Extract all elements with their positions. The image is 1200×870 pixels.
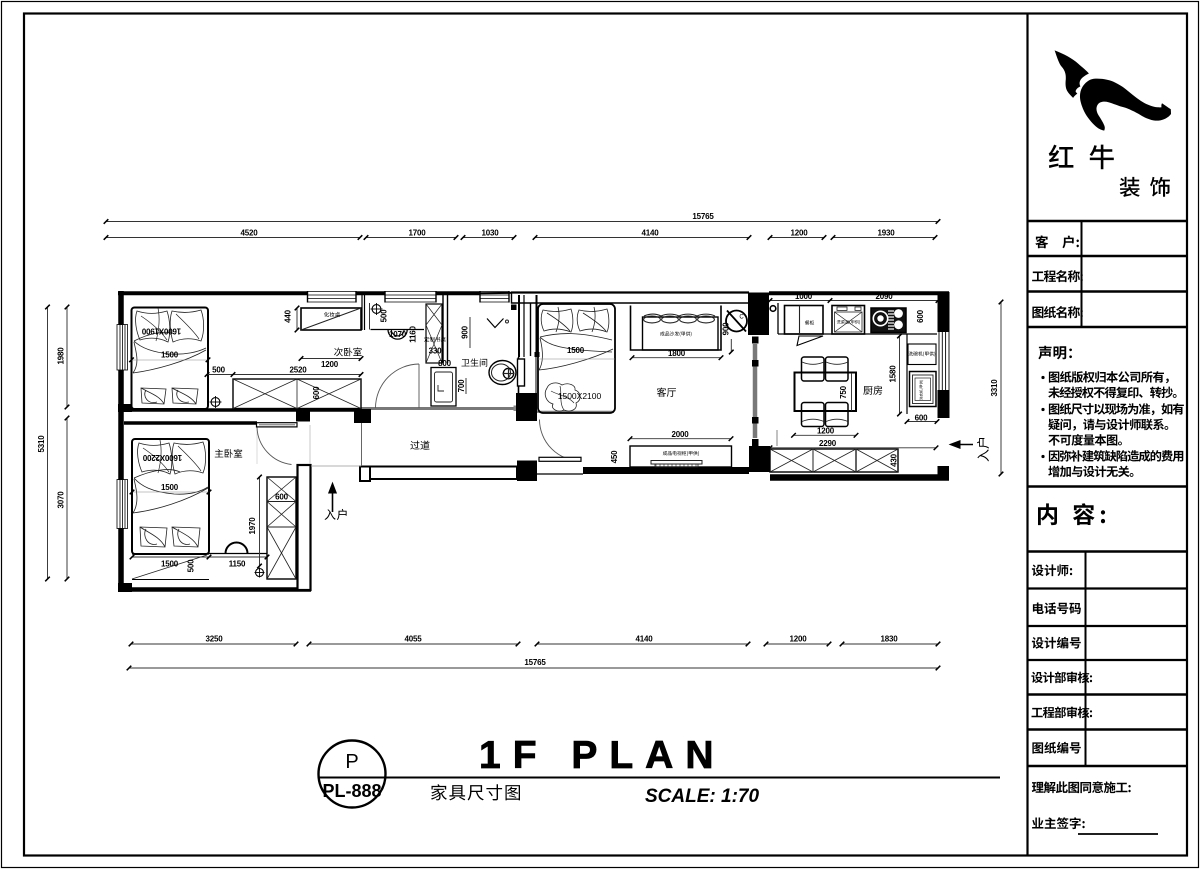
svg-text:1830: 1830 xyxy=(881,635,899,644)
svg-text:15765: 15765 xyxy=(524,658,546,667)
svg-text:PL-888: PL-888 xyxy=(322,781,381,801)
svg-text:2090: 2090 xyxy=(876,292,894,301)
svg-text:450: 450 xyxy=(610,450,619,463)
svg-text:SCALE: 1:70: SCALE: 1:70 xyxy=(645,786,759,807)
svg-text:430: 430 xyxy=(890,453,899,466)
svg-text:1600X2200: 1600X2200 xyxy=(142,453,182,462)
svg-text:1500: 1500 xyxy=(161,351,179,360)
svg-text:3250: 3250 xyxy=(206,635,224,644)
svg-text:2520: 2520 xyxy=(290,366,308,375)
svg-text:3310: 3310 xyxy=(990,379,999,397)
svg-text:1930: 1930 xyxy=(878,229,896,238)
svg-text:1070: 1070 xyxy=(389,330,407,339)
svg-text:15765: 15765 xyxy=(692,212,714,221)
svg-text:1200: 1200 xyxy=(817,427,835,436)
svg-text:C: C xyxy=(739,315,744,321)
svg-text:900: 900 xyxy=(722,322,731,335)
svg-text:1980: 1980 xyxy=(57,347,66,365)
svg-text:1000: 1000 xyxy=(795,292,813,301)
svg-text:500: 500 xyxy=(212,366,225,375)
svg-text:1200: 1200 xyxy=(321,360,339,369)
svg-text:500: 500 xyxy=(187,559,196,572)
svg-text:1700: 1700 xyxy=(409,229,427,238)
svg-text:750: 750 xyxy=(839,385,848,398)
svg-text:1150: 1150 xyxy=(229,560,246,569)
svg-text:1970: 1970 xyxy=(248,517,257,535)
svg-text:600: 600 xyxy=(312,386,321,399)
svg-text:330: 330 xyxy=(429,347,442,356)
svg-text:700: 700 xyxy=(457,379,466,392)
svg-text:1500: 1500 xyxy=(161,560,179,569)
svg-text:800: 800 xyxy=(438,359,451,368)
svg-text:1500X2100: 1500X2100 xyxy=(558,391,602,401)
svg-text:1800: 1800 xyxy=(668,349,686,358)
svg-text:600: 600 xyxy=(915,414,928,423)
svg-text:2290: 2290 xyxy=(819,439,837,448)
svg-text:3070: 3070 xyxy=(57,491,66,509)
svg-text:5310: 5310 xyxy=(37,435,46,453)
svg-text:500: 500 xyxy=(380,309,389,322)
svg-text:1500: 1500 xyxy=(161,483,179,492)
svg-text:1600X1900: 1600X1900 xyxy=(141,327,181,336)
svg-text:1F PLAN: 1F PLAN xyxy=(479,734,726,777)
svg-text:1160: 1160 xyxy=(409,325,418,342)
svg-text:1030: 1030 xyxy=(482,229,500,238)
svg-text:1500: 1500 xyxy=(567,346,585,355)
svg-text:P: P xyxy=(345,751,358,773)
svg-text:900: 900 xyxy=(461,325,470,338)
svg-text:600: 600 xyxy=(275,493,288,502)
svg-text:1580: 1580 xyxy=(888,365,897,383)
svg-text:4140: 4140 xyxy=(642,229,660,238)
svg-text:4140: 4140 xyxy=(636,635,654,644)
svg-text:1200: 1200 xyxy=(790,635,808,644)
svg-text:440: 440 xyxy=(284,309,293,322)
svg-text:4520: 4520 xyxy=(241,229,259,238)
svg-text:600: 600 xyxy=(916,309,925,322)
svg-text:1200: 1200 xyxy=(791,229,809,238)
svg-text:4055: 4055 xyxy=(405,635,423,644)
svg-text:2000: 2000 xyxy=(672,430,690,439)
